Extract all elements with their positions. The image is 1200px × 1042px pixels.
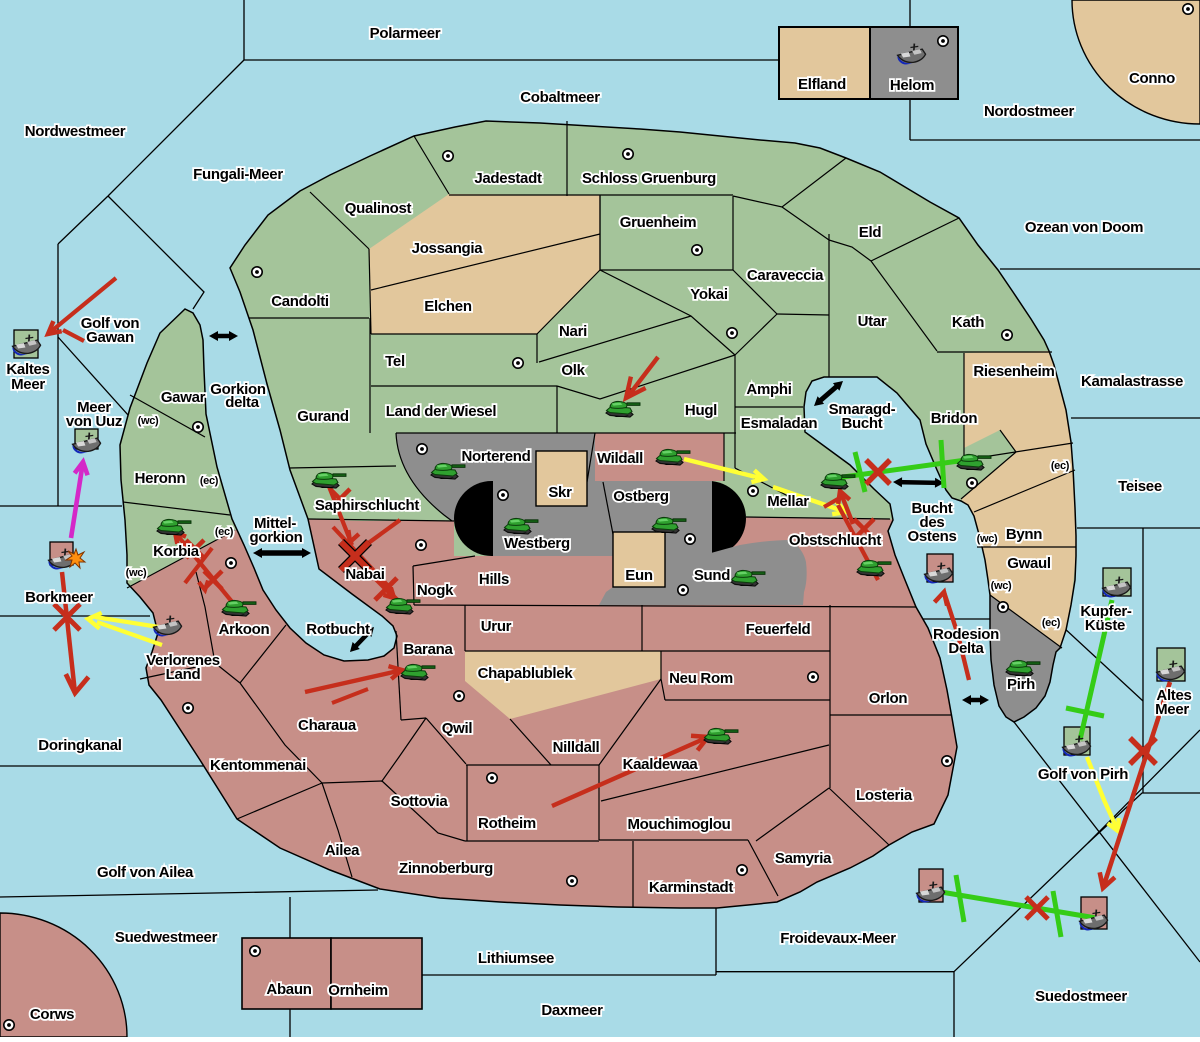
svg-text:Hugl: Hugl <box>685 402 717 419</box>
svg-text:Teisee: Teisee <box>1118 478 1162 495</box>
svg-text:Eld: Eld <box>859 224 882 241</box>
svg-text:Golf von Pirh: Golf von Pirh <box>1038 766 1128 783</box>
svg-text:Schloss Gruenburg: Schloss Gruenburg <box>582 170 716 187</box>
svg-text:Kath: Kath <box>952 314 984 331</box>
svg-text:Küste: Küste <box>1085 617 1125 634</box>
svg-text:Riesenheim: Riesenheim <box>973 363 1054 380</box>
svg-text:(wc): (wc) <box>991 580 1012 592</box>
svg-text:Mellar: Mellar <box>767 493 809 510</box>
svg-text:Conno: Conno <box>1129 70 1175 87</box>
svg-text:von Uuz: von Uuz <box>66 413 122 430</box>
svg-text:Land der Wiesel: Land der Wiesel <box>386 403 497 420</box>
svg-text:Chapablublek: Chapablublek <box>478 665 574 682</box>
svg-text:gorkion: gorkion <box>250 529 303 546</box>
svg-text:Orlon: Orlon <box>869 690 908 707</box>
svg-text:(wc): (wc) <box>138 415 159 427</box>
svg-text:Ornheim: Ornheim <box>328 982 388 999</box>
svg-text:Ostberg: Ostberg <box>613 488 669 505</box>
svg-text:Qualinost: Qualinost <box>345 200 412 217</box>
svg-text:Daxmeer: Daxmeer <box>541 1002 603 1019</box>
svg-text:Urur: Urur <box>481 618 512 635</box>
svg-text:Cobaltmeer: Cobaltmeer <box>520 89 600 106</box>
svg-text:Gawan: Gawan <box>86 329 134 346</box>
svg-text:Suedostmeer: Suedostmeer <box>1035 988 1127 1005</box>
svg-text:Suedwestmeer: Suedwestmeer <box>115 929 218 946</box>
svg-text:Gurand: Gurand <box>297 408 349 425</box>
svg-text:(ec): (ec) <box>1042 617 1061 629</box>
svg-text:Eun: Eun <box>625 567 653 584</box>
svg-text:Rotheim: Rotheim <box>478 815 536 832</box>
svg-text:Yokai: Yokai <box>690 286 728 303</box>
svg-text:Olk: Olk <box>561 362 585 379</box>
svg-text:Candolti: Candolti <box>271 293 329 310</box>
svg-text:Gwaul: Gwaul <box>1007 555 1051 572</box>
svg-text:Kentommenai: Kentommenai <box>210 757 306 774</box>
svg-text:Heronn: Heronn <box>135 470 186 487</box>
svg-text:Karminstadt: Karminstadt <box>649 879 734 896</box>
svg-text:Polarmeer: Polarmeer <box>370 25 441 42</box>
svg-text:(wc): (wc) <box>977 533 998 545</box>
svg-text:Arkoon: Arkoon <box>219 621 270 638</box>
svg-text:(ec): (ec) <box>1051 460 1070 472</box>
svg-text:Ailea: Ailea <box>325 842 360 859</box>
svg-text:Meer: Meer <box>11 376 45 393</box>
svg-text:(wc): (wc) <box>126 567 147 579</box>
svg-text:Saphirschlucht: Saphirschlucht <box>315 497 419 514</box>
svg-text:Gruenheim: Gruenheim <box>620 214 696 231</box>
svg-text:Barana: Barana <box>403 641 453 658</box>
svg-text:Esmaladan: Esmaladan <box>741 415 818 432</box>
svg-text:Neu Rom: Neu Rom <box>669 670 733 687</box>
svg-text:Hills: Hills <box>479 571 509 588</box>
svg-text:Jadestadt: Jadestadt <box>474 170 542 187</box>
svg-text:Fungali-Meer: Fungali-Meer <box>193 166 283 183</box>
svg-text:Norterend: Norterend <box>462 448 531 465</box>
svg-text:(ec): (ec) <box>200 475 219 487</box>
svg-text:Nogk: Nogk <box>417 582 454 599</box>
svg-text:Lithiumsee: Lithiumsee <box>478 950 554 967</box>
svg-text:Rotbucht: Rotbucht <box>306 621 370 638</box>
svg-text:Sottovia: Sottovia <box>391 793 449 810</box>
svg-text:Korbia: Korbia <box>153 543 200 560</box>
svg-text:Bynn: Bynn <box>1006 526 1042 543</box>
svg-text:Mouchimoglou: Mouchimoglou <box>627 816 730 833</box>
svg-text:Amphi: Amphi <box>746 381 791 398</box>
svg-text:Pirh: Pirh <box>1007 676 1035 693</box>
svg-text:Nabai: Nabai <box>345 566 384 583</box>
svg-text:Zinnoberburg: Zinnoberburg <box>399 860 493 877</box>
svg-text:Corws: Corws <box>30 1006 74 1023</box>
svg-text:Elfland: Elfland <box>798 76 846 93</box>
svg-text:Nordwestmeer: Nordwestmeer <box>25 123 126 140</box>
svg-text:Nordostmeer: Nordostmeer <box>984 103 1075 120</box>
svg-text:Nari: Nari <box>559 323 587 340</box>
svg-text:Kamalastrasse: Kamalastrasse <box>1081 373 1183 390</box>
svg-text:Skr: Skr <box>548 484 572 501</box>
svg-text:Abaun: Abaun <box>266 981 311 998</box>
svg-text:Helom: Helom <box>890 77 934 94</box>
svg-text:Jossangia: Jossangia <box>412 240 484 257</box>
svg-text:Utar: Utar <box>858 313 887 330</box>
svg-text:delta: delta <box>225 394 259 411</box>
svg-text:Ostens: Ostens <box>907 528 956 545</box>
svg-text:Sund: Sund <box>694 567 730 584</box>
svg-text:Wildall: Wildall <box>597 450 643 467</box>
svg-text:Kaaldewaa: Kaaldewaa <box>623 756 699 773</box>
svg-text:Obstschlucht: Obstschlucht <box>789 532 882 549</box>
svg-text:Charaua: Charaua <box>298 717 357 734</box>
svg-text:Caraveccia: Caraveccia <box>747 267 824 284</box>
svg-text:Tel: Tel <box>385 353 405 370</box>
svg-text:Bridon: Bridon <box>931 410 978 427</box>
svg-text:Bucht: Bucht <box>842 415 883 432</box>
svg-text:(ec): (ec) <box>215 526 234 538</box>
svg-text:Gawar: Gawar <box>161 389 206 406</box>
svg-text:Samyria: Samyria <box>775 850 832 867</box>
svg-text:Qwil: Qwil <box>442 720 473 737</box>
svg-text:Nilldall: Nilldall <box>553 739 600 756</box>
svg-text:Ozean von Doom: Ozean von Doom <box>1025 219 1143 236</box>
svg-text:Land: Land <box>166 666 201 683</box>
svg-text:Westberg: Westberg <box>504 535 570 552</box>
svg-text:Delta: Delta <box>948 640 984 657</box>
svg-text:Doringkanal: Doringkanal <box>38 737 122 754</box>
svg-text:Losteria: Losteria <box>856 787 913 804</box>
svg-text:Froidevaux-Meer: Froidevaux-Meer <box>780 930 896 947</box>
svg-text:Meer: Meer <box>1155 701 1189 718</box>
svg-text:Golf von Ailea: Golf von Ailea <box>97 864 194 881</box>
svg-text:Elchen: Elchen <box>424 298 472 315</box>
svg-text:Borkmeer: Borkmeer <box>25 589 93 606</box>
svg-text:Feuerfeld: Feuerfeld <box>746 621 811 638</box>
